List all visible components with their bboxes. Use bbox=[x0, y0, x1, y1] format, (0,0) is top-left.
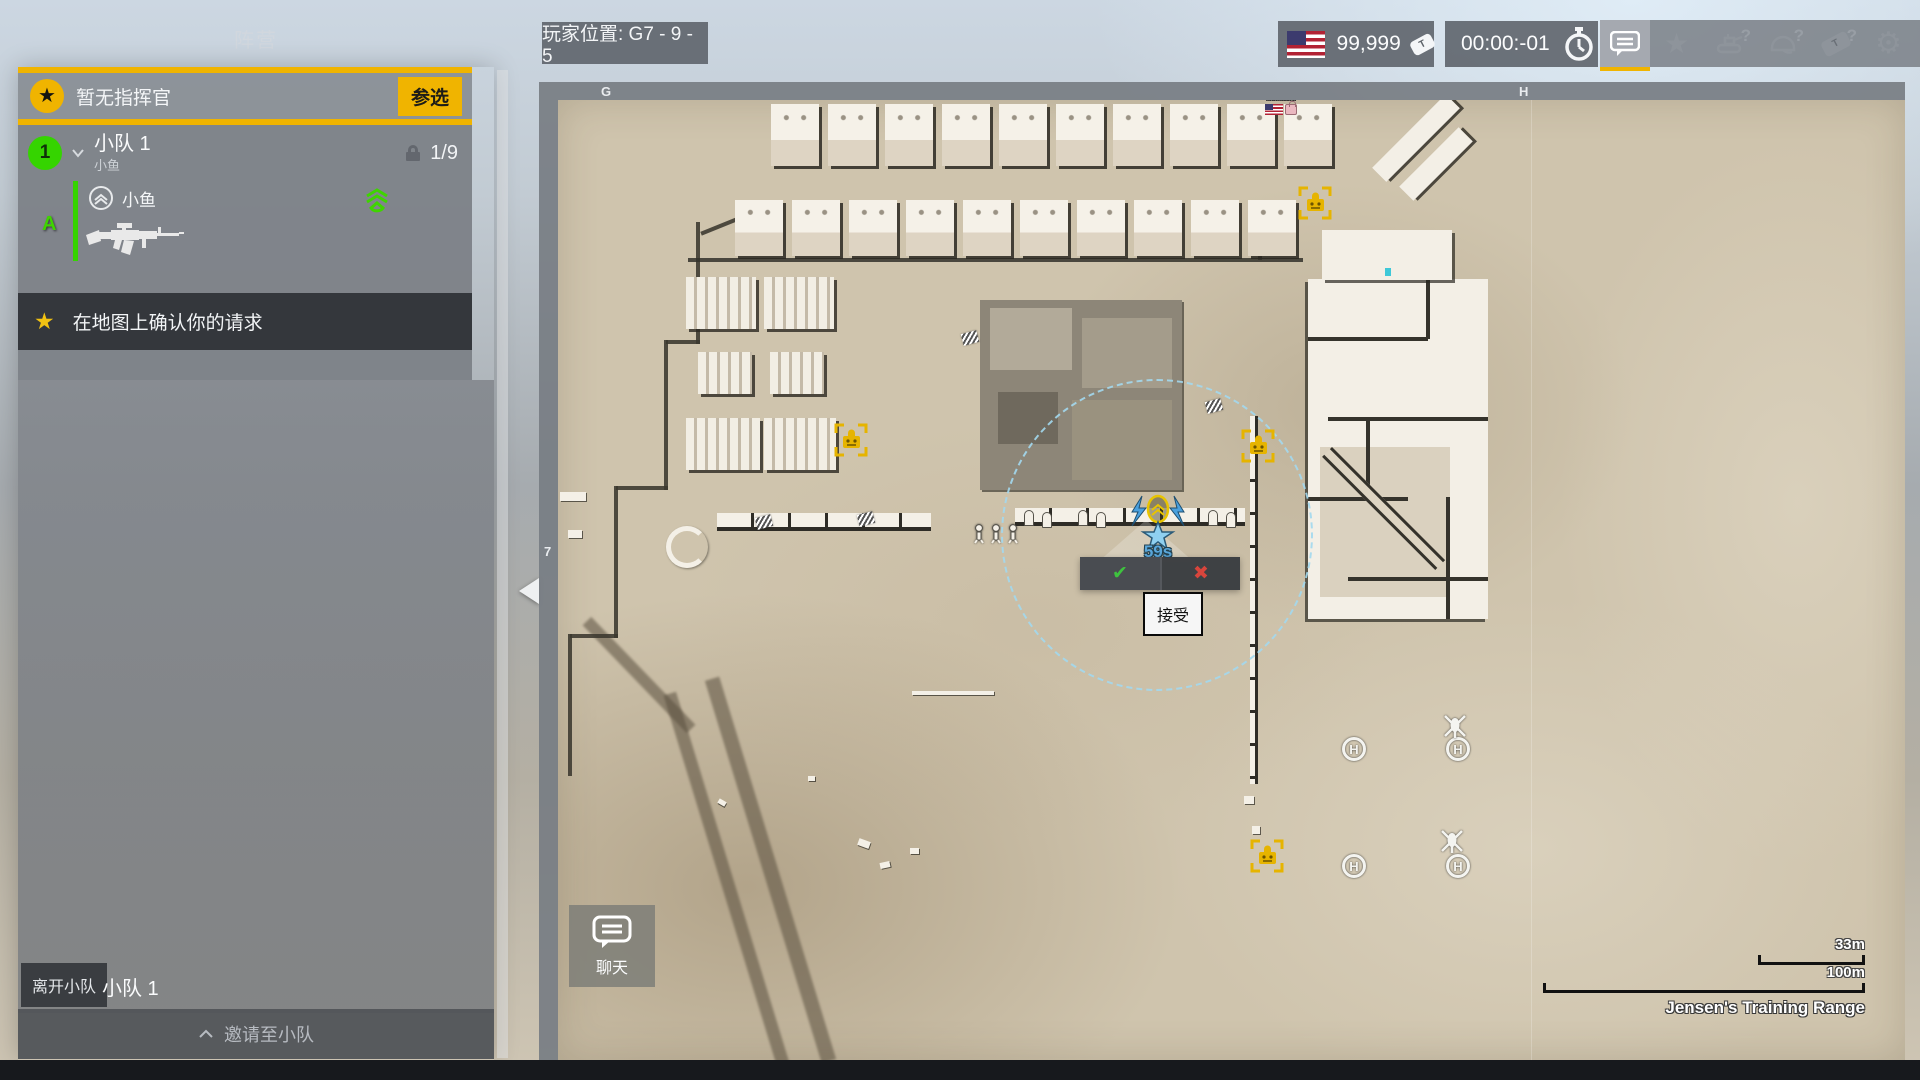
commander-star-icon[interactable]: ★ bbox=[1650, 20, 1703, 67]
building bbox=[1134, 200, 1182, 256]
building bbox=[1170, 104, 1218, 166]
map-chat-button[interactable]: 聊天 bbox=[569, 905, 655, 987]
member-selection-bar bbox=[73, 181, 78, 261]
chat-icon[interactable] bbox=[1600, 20, 1650, 67]
invite-to-squad-button[interactable]: 邀请至小队 bbox=[18, 1009, 494, 1059]
tickets-value: 99,999 bbox=[1337, 32, 1401, 56]
helicopter-icon bbox=[1438, 827, 1466, 860]
building bbox=[849, 200, 897, 256]
chevron-down-icon[interactable] bbox=[71, 148, 85, 158]
accept-tooltip: 接受 bbox=[1143, 592, 1203, 636]
building bbox=[1020, 200, 1068, 256]
scale-label-short: 33m bbox=[1715, 936, 1865, 953]
panel-body bbox=[18, 380, 494, 1013]
ammo-crate-marker bbox=[1298, 186, 1332, 220]
leave-row: 离开小队 小队 1 bbox=[18, 963, 494, 1005]
star-icon: ★ bbox=[34, 308, 55, 335]
request-notice-row: ★ 在地图上确认你的请求 bbox=[18, 293, 472, 350]
leave-squad-button[interactable]: 离开小队 bbox=[21, 963, 107, 1007]
map-viewport[interactable]: Main 59s ✔ ✖ 接受 HHHH bbox=[558, 100, 1905, 1060]
confirm-request-bar: ✔ ✖ bbox=[1080, 557, 1240, 590]
vehicle-help-icon[interactable]: ? bbox=[1703, 20, 1756, 67]
large-building-complex bbox=[1308, 279, 1488, 619]
squad-header[interactable]: 1 小队 1 小鱼 1/9 bbox=[18, 125, 472, 181]
grid-line bbox=[1531, 100, 1532, 1060]
hud-icon-strip: ★ ? ? T ? ⚙ bbox=[1600, 20, 1920, 67]
fireteam-letter: A bbox=[42, 213, 56, 236]
scale-label-long: 100m bbox=[1715, 964, 1865, 981]
ticket-help-icon[interactable]: T ? bbox=[1809, 20, 1862, 67]
rifle-icon bbox=[86, 219, 186, 261]
invite-label: 邀请至小队 bbox=[224, 1021, 314, 1047]
ammo-crate-marker bbox=[1241, 429, 1275, 463]
scale-bar-long bbox=[1543, 990, 1865, 993]
accept-button[interactable]: ✔ bbox=[1080, 557, 1160, 590]
protection-lock-icon bbox=[1285, 104, 1297, 115]
lock-icon bbox=[406, 145, 420, 161]
grid-row-7: 7 bbox=[544, 544, 551, 559]
helipad-marker: H bbox=[1342, 854, 1366, 878]
building bbox=[942, 104, 990, 166]
building bbox=[1113, 104, 1161, 166]
helipad-marker: H bbox=[1342, 737, 1366, 761]
helicopter-icon bbox=[1441, 712, 1469, 745]
building bbox=[999, 104, 1047, 166]
tickets-box: 99,999 T bbox=[1278, 21, 1434, 67]
infantry-help-icon[interactable]: ? bbox=[1756, 20, 1809, 67]
chevron-up-icon bbox=[198, 1029, 214, 1039]
squad-number-badge: 1 bbox=[28, 136, 62, 170]
building bbox=[885, 104, 933, 166]
current-squad-label: 小队 1 bbox=[102, 972, 159, 1001]
squad-leader-name: 小鱼 bbox=[94, 155, 406, 174]
building bbox=[1191, 200, 1239, 256]
match-timer-value: 00:00:-01 bbox=[1461, 32, 1550, 56]
squad-panel: ★ 暂无指挥官 参选 1 小队 1 小鱼 1/9 A bbox=[18, 67, 494, 1060]
vehicle-spawn-marker bbox=[1385, 268, 1391, 276]
ammo-crate-marker bbox=[834, 423, 868, 457]
no-commander-label: 暂无指挥官 bbox=[76, 83, 398, 110]
building bbox=[906, 200, 954, 256]
map-name: Jensen's Training Range bbox=[1565, 998, 1865, 1018]
faction-title: 阵营 bbox=[18, 24, 494, 53]
building bbox=[792, 200, 840, 256]
squad-capacity: 1/9 bbox=[430, 142, 458, 165]
building bbox=[1077, 200, 1125, 256]
squad-name: 小队 1 bbox=[94, 133, 406, 155]
ticket-icon: T bbox=[1409, 32, 1437, 56]
member-row[interactable]: A 小鱼 bbox=[18, 181, 472, 293]
chat-label: 聊天 bbox=[596, 954, 628, 978]
settings-gear-icon[interactable]: ⚙ bbox=[1862, 20, 1915, 67]
panel-scrollbar[interactable] bbox=[497, 70, 508, 1058]
volunteer-button[interactable]: 参选 bbox=[398, 77, 462, 116]
us-flag-icon bbox=[1287, 31, 1325, 58]
squad-section: 1 小队 1 小鱼 1/9 A 小鱼 bbox=[18, 125, 472, 380]
building bbox=[1248, 200, 1296, 256]
building bbox=[771, 104, 819, 166]
chat-bubble-icon bbox=[592, 915, 632, 949]
ammo-crate-marker bbox=[1250, 839, 1284, 873]
grid-col-h: H bbox=[1519, 84, 1528, 99]
squad-leader-badge-icon bbox=[88, 185, 114, 211]
match-timer-box: 00:00:-01 bbox=[1445, 21, 1598, 67]
stopwatch-icon bbox=[1562, 26, 1596, 62]
range-baseline bbox=[688, 258, 1303, 262]
grid-col-g: G bbox=[601, 84, 611, 99]
commander-star-icon: ★ bbox=[30, 79, 64, 113]
main-base-marker: Main bbox=[1265, 100, 1297, 115]
player-position-box: 玩家位置: G7 - 9 - 5 bbox=[542, 22, 708, 64]
building bbox=[828, 104, 876, 166]
us-flag-icon bbox=[1265, 104, 1283, 115]
member-name: 小鱼 bbox=[122, 186, 156, 211]
deny-button[interactable]: ✖ bbox=[1160, 557, 1240, 590]
building bbox=[963, 200, 1011, 256]
panel-collapse-arrow[interactable] bbox=[519, 578, 539, 604]
rank-chevrons-icon bbox=[362, 187, 392, 215]
building bbox=[1056, 104, 1104, 166]
bottom-bar bbox=[0, 1060, 1920, 1080]
request-notice-text: 在地图上确认你的请求 bbox=[73, 308, 263, 335]
building bbox=[735, 200, 783, 256]
commander-row: ★ 暂无指挥官 参选 bbox=[18, 73, 472, 119]
